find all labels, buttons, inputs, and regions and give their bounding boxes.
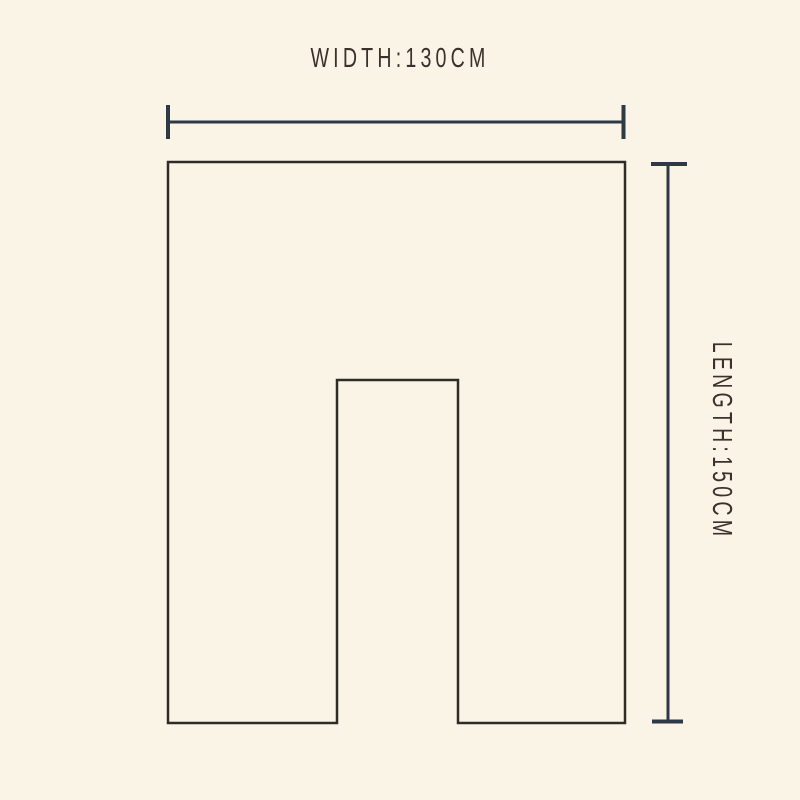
length-dimension-line [651,164,687,722]
width-dimension-line [168,105,624,139]
diagram-canvas-svg [0,0,800,800]
length-dimension-label: LENGTH:150CM [708,342,736,541]
panel-outline [168,162,625,723]
product-dimension-diagram: WIDTH:130CM LENGTH:150CM [0,0,800,800]
